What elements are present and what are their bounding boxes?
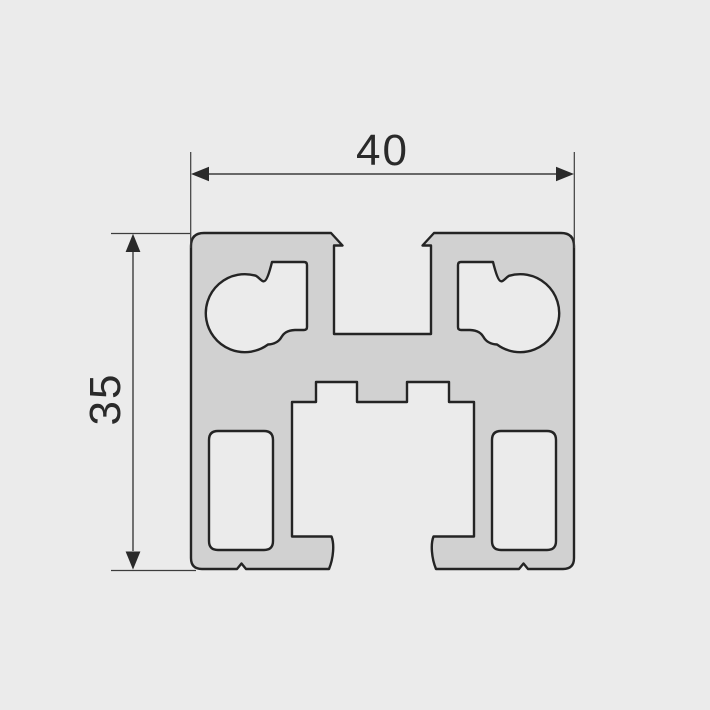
width-dimension: 40: [191, 126, 575, 248]
profile-cross-section: [191, 233, 574, 569]
drawing-canvas: 40 35: [0, 0, 710, 710]
width-dimension-label: 40: [356, 126, 409, 175]
arrowhead-right-icon: [556, 167, 574, 181]
arrowhead-down-icon: [126, 552, 141, 570]
arrowhead-up-icon: [126, 234, 141, 252]
profile-technical-drawing: 40 35: [0, 0, 710, 710]
arrowhead-left-icon: [191, 167, 209, 181]
height-dimension-label: 35: [81, 373, 130, 426]
height-dimension: 35: [81, 234, 196, 571]
